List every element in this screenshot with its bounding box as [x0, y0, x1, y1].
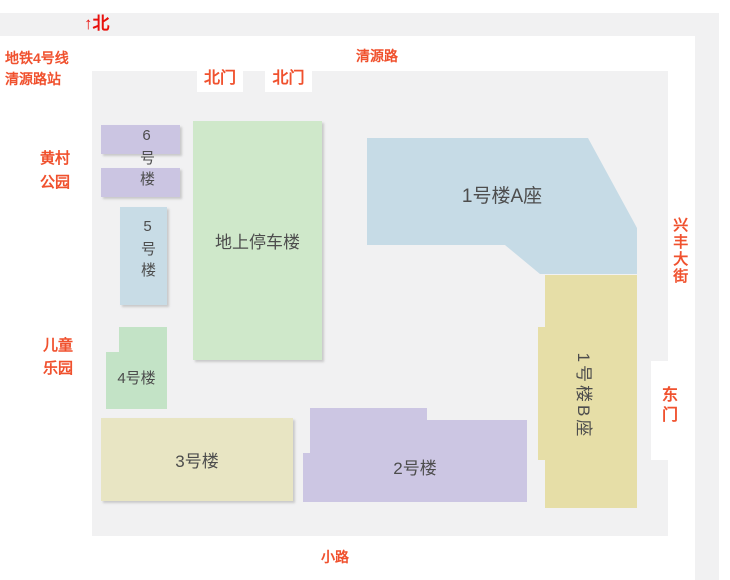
building-2[interactable]: 2号楼 [303, 408, 527, 502]
building-3[interactable]: 3号楼 [101, 418, 293, 501]
landmark-qingyuanlu-station: 清源路站 [5, 71, 61, 87]
community-map: ↑北 清源路 兴丰大街 小路 地铁4号线 清源路站 黄村 公园 儿童 乐园 北门… [0, 0, 730, 580]
road-label-xiaolu: 小路 [321, 549, 349, 565]
landmark-huangcun-park-line1: 黄村 [40, 150, 70, 167]
building-6-label: 6号楼 [127, 127, 157, 192]
landmark-huangcun-park-line2: 公园 [40, 174, 70, 191]
north-gate-2: 北门 [265, 65, 312, 92]
parking-structure[interactable]: 地上停车楼 [193, 121, 322, 360]
road-east-xingfeng [695, 13, 719, 580]
building-5-label: 5号楼 [128, 218, 158, 283]
landmark-subway-line4: 地铁4号线 [5, 50, 69, 66]
road-label-xingfeng-street: 兴丰大街 [671, 217, 688, 285]
building-1-tower-b-label: 1号楼B座 [578, 336, 598, 456]
building-4-label: 4号楼 [106, 367, 167, 388]
landmark-children-playground-line2: 乐园 [43, 360, 73, 377]
building-2-label: 2号楼 [303, 454, 527, 479]
north-arrow-indicator: ↑北 [84, 14, 110, 34]
parking-structure-label: 地上停车楼 [215, 228, 300, 253]
east-gate: 东门 [655, 386, 679, 426]
north-gate-1: 北门 [197, 65, 243, 92]
landmark-children-playground-line1: 儿童 [43, 337, 73, 354]
road-label-qingyuanlu: 清源路 [356, 48, 398, 64]
building-1-tower-a-label: 1号楼A座 [367, 181, 637, 208]
building-3-label: 3号楼 [175, 447, 218, 472]
